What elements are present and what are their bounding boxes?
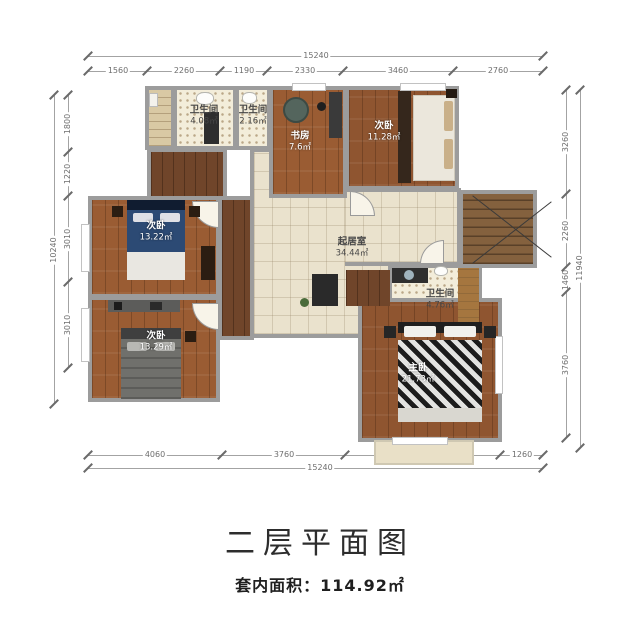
dim-top-seg-2: 2260 [172,67,196,75]
toilet [196,92,214,105]
pillow [404,326,436,337]
dim-left-seg-4: 3010 [64,313,72,337]
toilet [434,266,448,276]
dim-top-seg-5: 3460 [386,67,410,75]
desk [329,92,342,138]
nightstand [189,206,200,217]
dim-left-seg-1: 1800 [64,112,72,136]
cabinet [149,93,158,107]
dim-top-seg-1: 1560 [106,67,130,75]
dim-left-seg-3: 3010 [64,227,72,251]
toilet [242,92,257,104]
closet [458,268,479,326]
dim-bottom-seg-1: 4060 [143,451,167,459]
corner-cabinet [446,89,457,98]
dim-right-seg-2: 2260 [562,219,570,243]
pillow [444,101,453,131]
desk-item [114,302,122,310]
window [495,336,503,394]
dim-right-seg-4: 3760 [562,353,570,377]
label-living: 起居室 34.44㎡ [336,236,369,259]
floor-plan-page: 15240 1560 2260 1190 2330 3460 2760 1524… [0,0,640,626]
label-bathroom-master: 卫生间 4.76㎡ [426,288,455,311]
dim-bottom-total: 15240 [305,464,334,472]
bed-headboard [127,200,185,210]
dim-top-total: 15240 [301,52,330,60]
dim-bottom-seg-2: 3760 [272,451,296,459]
label-study: 书房 7.6㎡ [289,130,311,153]
dim-bottom-seg-4: 1260 [510,451,534,459]
desk-item [150,302,162,310]
window [81,224,90,272]
window [81,308,90,362]
window [400,83,446,91]
page-title: 二层平面图 [0,518,640,562]
dim-right-total: 11940 [576,253,584,282]
nightstand [112,206,123,217]
staircase [459,190,537,268]
round-rug [283,97,309,123]
dresser [201,246,215,280]
label-bedroom-top-right: 次卧 11.28㎡ [368,120,401,143]
nightstand [185,331,196,342]
window [292,83,326,91]
bed-sheet [127,252,185,280]
dim-left-total: 10240 [50,235,58,264]
dim-top-seg-6: 2760 [486,67,510,75]
pillow [444,326,476,337]
sink [404,270,414,280]
hallway-vertical [218,196,254,340]
inner-area-text: 套内面积：114.92㎡ [0,572,640,596]
nightstand [484,326,496,338]
dim-right-seg-1: 3260 [562,130,570,154]
plant [300,298,309,307]
dim-left-seg-2: 1220 [64,162,72,186]
dim-top-seg-3: 1190 [232,67,256,75]
bed-sheet [398,408,482,422]
label-master-bedroom: 主卧 21.73㎡ [402,362,435,385]
corridor-horizontal [147,148,227,200]
pillow [444,139,453,169]
label-bathroom-1: 卫生间 4.08㎡ [190,104,219,127]
chair [317,102,326,111]
label-bedroom-left-upper: 次卧 13.22㎡ [140,220,173,243]
label-bedroom-left-lower: 次卧 13.29㎡ [140,330,173,353]
balcony-door [392,437,448,445]
label-bathroom-2: 卫生间 2.16㎡ [239,104,268,127]
dim-top-seg-4: 2330 [293,67,317,75]
nightstand [384,326,396,338]
master-entry-floor [346,270,390,306]
cabinet [312,274,338,306]
